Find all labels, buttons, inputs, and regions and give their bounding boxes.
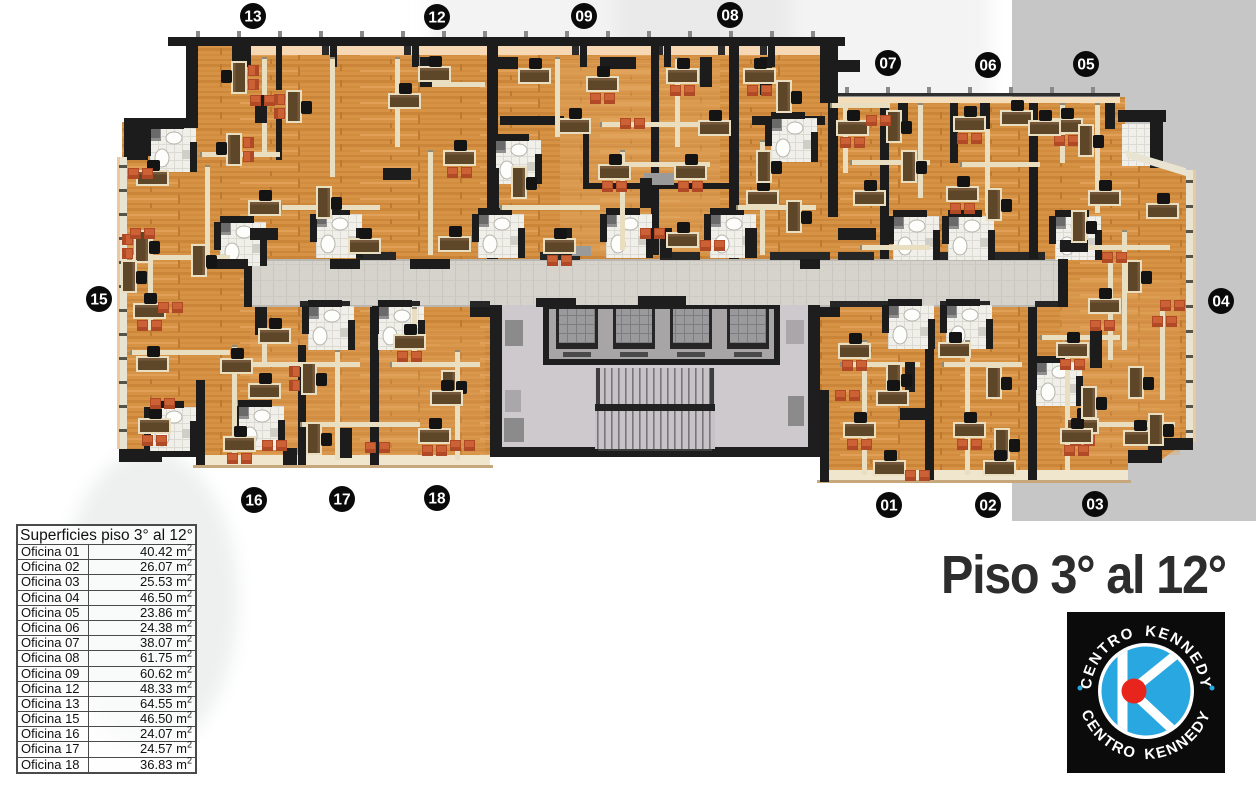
svg-text:06: 06 bbox=[979, 58, 997, 75]
svg-text:09: 09 bbox=[575, 9, 593, 26]
svg-text:04: 04 bbox=[1212, 294, 1230, 311]
svg-text:03: 03 bbox=[1086, 497, 1104, 514]
svg-text:01: 01 bbox=[880, 498, 898, 515]
svg-text:18: 18 bbox=[428, 491, 446, 508]
svg-text:12: 12 bbox=[428, 10, 445, 27]
svg-text:02: 02 bbox=[979, 498, 996, 515]
svg-text:16: 16 bbox=[245, 493, 263, 510]
svg-text:07: 07 bbox=[879, 56, 896, 73]
svg-text:08: 08 bbox=[721, 8, 739, 25]
svg-text:15: 15 bbox=[90, 292, 108, 309]
svg-text:05: 05 bbox=[1077, 57, 1095, 74]
svg-text:13: 13 bbox=[244, 9, 262, 26]
svg-text:17: 17 bbox=[333, 492, 350, 509]
